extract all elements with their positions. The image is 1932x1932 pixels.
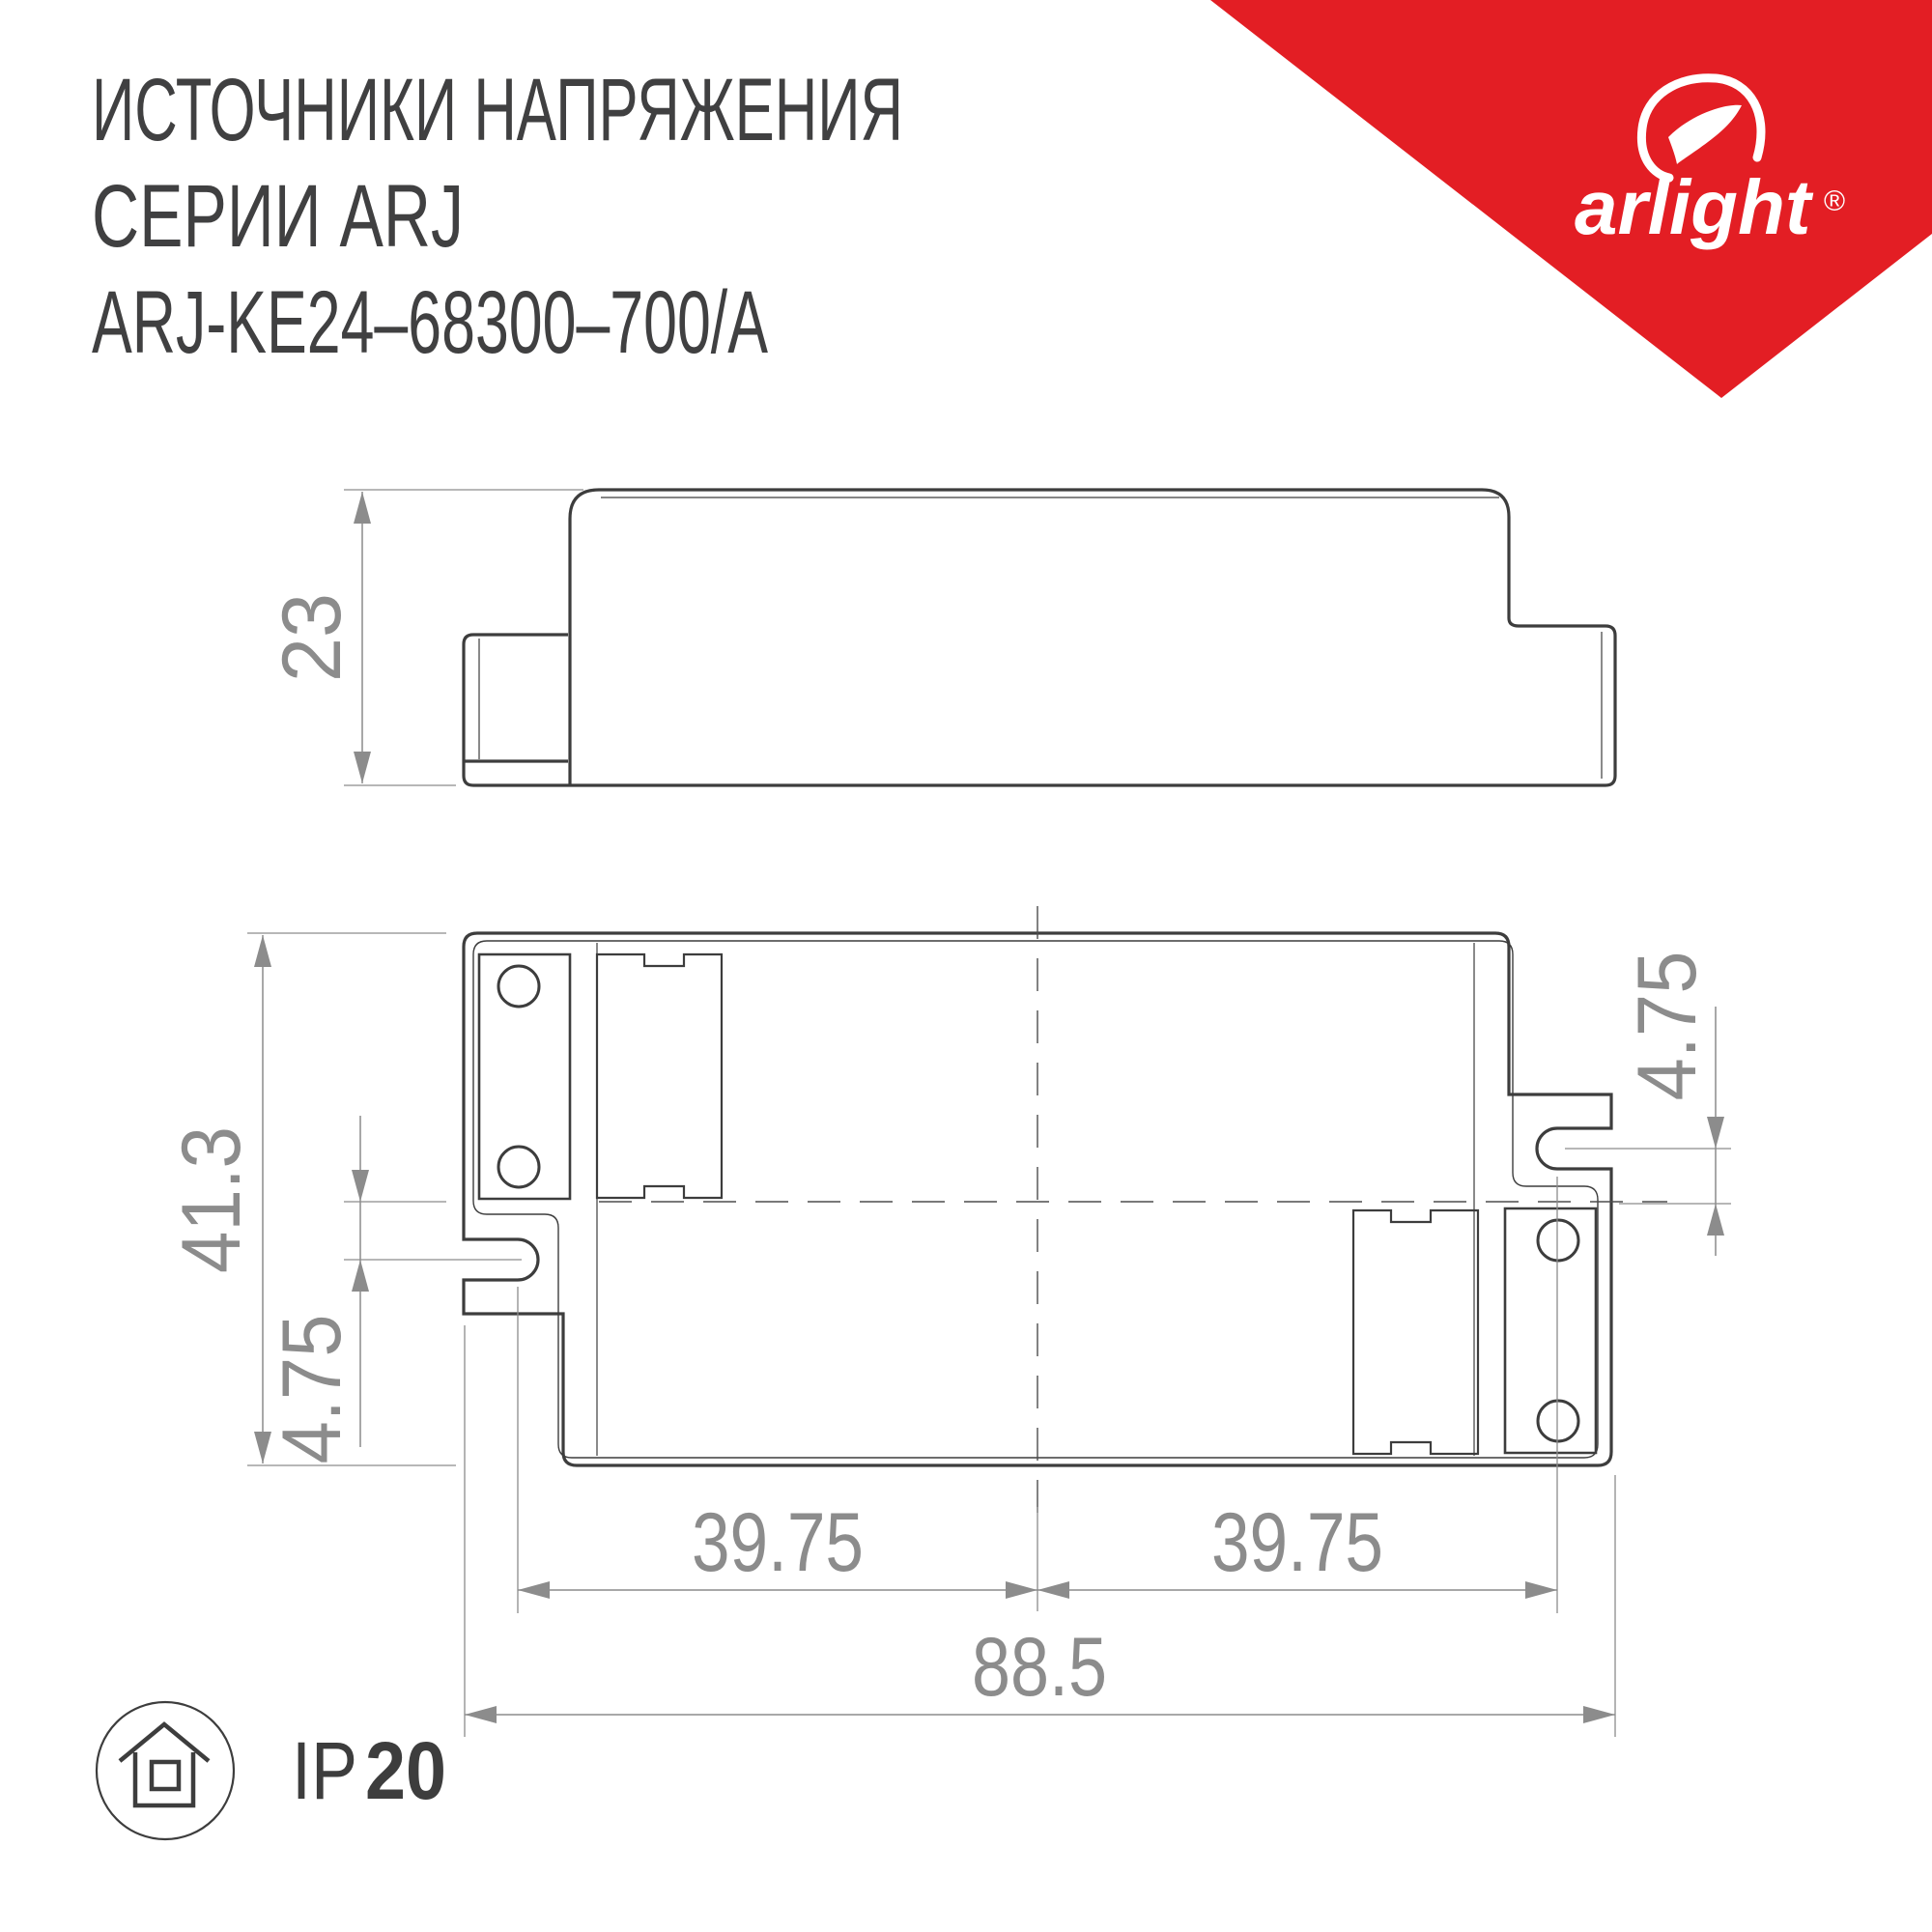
dimension-slot-offset-left: 4.75: [266, 1116, 522, 1464]
title-line-2: СЕРИИ ARJ: [92, 167, 464, 266]
brand-wordmark: arlight: [1575, 164, 1814, 250]
registered-trademark-symbol: ®: [1824, 185, 1845, 217]
arrow-right-icon: [1525, 1581, 1557, 1599]
ip-rating-value: 20: [365, 1725, 446, 1816]
arrow-down-icon: [352, 1170, 369, 1202]
page-title: ИСТОЧНИКИ НАПРЯЖЕНИЯ СЕРИИ ARJ ARJ-KE24–…: [92, 61, 903, 372]
screw-hole: [1538, 1401, 1578, 1441]
house-window: [152, 1762, 179, 1789]
arrow-left-icon: [465, 1706, 497, 1723]
lid-outline: [473, 941, 1598, 1458]
dimension-slot-offset-right: 4.75: [1565, 952, 1731, 1257]
datasheet-page: ИСТОЧНИКИ НАПРЯЖЕНИЯ СЕРИИ ARJ ARJ-KE24–…: [0, 0, 1932, 1932]
arrow-right-icon: [1006, 1581, 1037, 1599]
drawing-sheet: ИСТОЧНИКИ НАПРЯЖЕНИЯ СЕРИИ ARJ ARJ-KE24–…: [0, 0, 1932, 1932]
dimension-label-88-5: 88.5: [972, 1621, 1107, 1714]
internal-component-left: [597, 954, 722, 1198]
arrow-up-icon: [354, 492, 371, 524]
ip-rating-prefix: IP: [292, 1725, 357, 1816]
arrow-up-icon: [352, 1260, 369, 1292]
screw-hole: [498, 1147, 539, 1187]
side-view-drawing: [464, 490, 1615, 785]
screw-hole: [498, 966, 539, 1007]
dimension-label-39-75-left: 39.75: [692, 1496, 864, 1589]
screw-hole: [1538, 1220, 1578, 1261]
dimension-label-4-75-left: 4.75: [266, 1315, 358, 1464]
arrow-left-icon: [518, 1581, 550, 1599]
arrow-down-icon: [354, 752, 371, 783]
arrow-up-icon: [1707, 1204, 1724, 1236]
ip-rating-badge: IP 20: [97, 1702, 446, 1839]
arrow-right-icon: [1583, 1706, 1615, 1723]
side-view-outline: [464, 490, 1615, 785]
title-line-1: ИСТОЧНИКИ НАПРЯЖЕНИЯ: [92, 61, 903, 159]
indoor-house-icon: [120, 1724, 209, 1805]
mounting-plate-left: [479, 954, 570, 1199]
dimension-height-23: 23: [266, 490, 583, 785]
dimension-overall-length: 88.5: [465, 1621, 1615, 1723]
arrow-up-icon: [254, 935, 271, 967]
dimension-label-41-3: 41.3: [165, 1126, 258, 1273]
dimension-label-23: 23: [266, 593, 358, 682]
dimension-label-39-75-right: 39.75: [1211, 1496, 1383, 1589]
arrow-down-icon: [1707, 1117, 1724, 1149]
dimension-label-4-75-right: 4.75: [1621, 952, 1714, 1101]
mounting-plate-right: [1505, 1208, 1596, 1453]
title-line-3: ARJ-KE24–68300–700/A: [92, 273, 768, 372]
arrow-left-icon: [1037, 1581, 1069, 1599]
internal-component-right: [1353, 1210, 1478, 1454]
top-view-drawing: [464, 906, 1667, 1524]
brand-corner: arlight ®: [1210, 0, 1932, 398]
